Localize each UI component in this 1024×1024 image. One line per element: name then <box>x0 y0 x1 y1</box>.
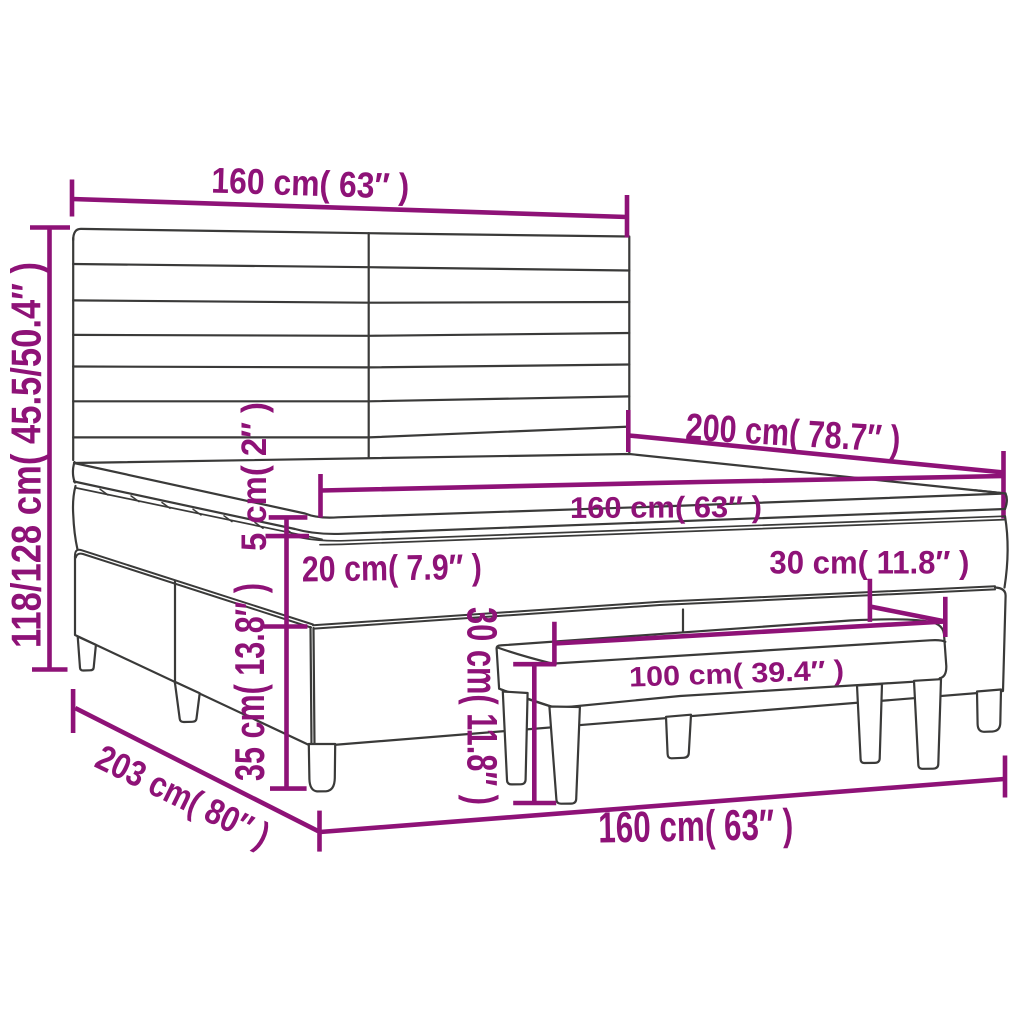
svg-text:200 cm( 78.7″ ): 200 cm( 78.7″ ) <box>684 407 901 462</box>
svg-text:160 cm( 63″ ): 160 cm( 63″ ) <box>211 160 410 207</box>
svg-text:160 cm( 63″ ): 160 cm( 63″ ) <box>570 491 762 525</box>
svg-text:35 cm( 13.8″ ): 35 cm( 13.8″ ) <box>226 583 273 781</box>
svg-text:118/128 cm( 45.5/50.4″ ): 118/128 cm( 45.5/50.4″ ) <box>3 262 50 648</box>
svg-text:5 cm( 2″ ): 5 cm( 2″ ) <box>234 402 274 551</box>
svg-text:160 cm( 63″ ): 160 cm( 63″ ) <box>598 801 794 852</box>
svg-text:30 cm( 11.8″ ): 30 cm( 11.8″ ) <box>458 607 506 805</box>
svg-text:30 cm( 11.8″ ): 30 cm( 11.8″ ) <box>769 545 969 581</box>
svg-text:20 cm( 7.9″ ): 20 cm( 7.9″ ) <box>302 546 483 590</box>
